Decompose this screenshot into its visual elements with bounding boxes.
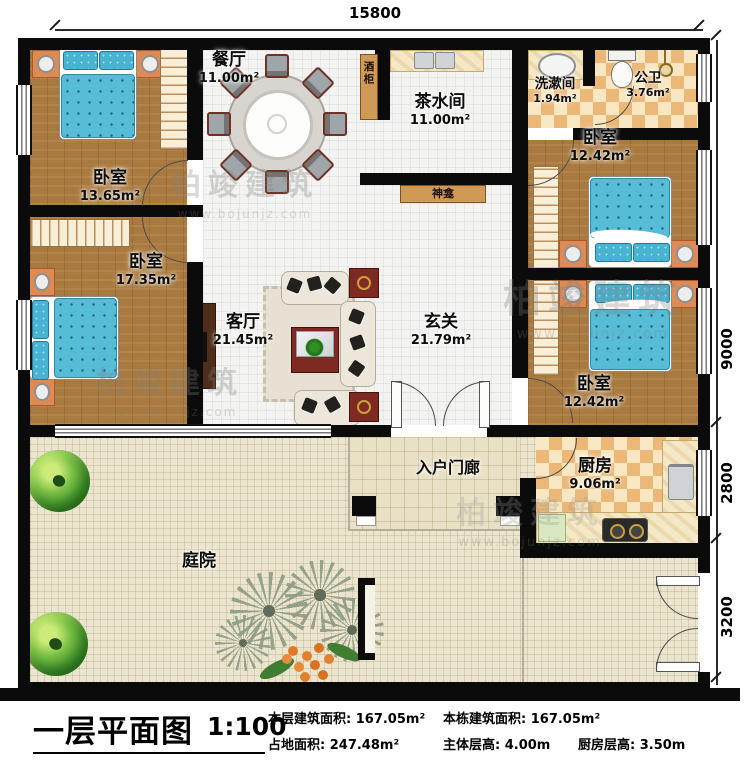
pillow <box>32 341 49 380</box>
nightstand <box>559 280 587 308</box>
wine-cabinet: 酒柜 <box>360 54 378 120</box>
kitchen-cabinet <box>538 514 566 542</box>
courtyard-gate-opening <box>698 573 710 672</box>
nightstand <box>559 240 587 268</box>
porch-edge-line <box>348 437 350 530</box>
wall <box>18 425 55 437</box>
room-label-porch: 入户门廊 <box>388 458 508 478</box>
wall <box>512 140 528 378</box>
title-bar <box>0 688 740 701</box>
fruit-cluster-icon <box>288 646 298 656</box>
bed-blanket <box>590 309 670 370</box>
sheet-title: 一层平面图 <box>33 706 193 751</box>
wall <box>520 543 710 558</box>
wall <box>18 205 203 217</box>
window <box>696 150 712 245</box>
room-label-courtyard: 庭院 <box>159 551 239 572</box>
stat-building-area: 本栋建筑面积: 167.05m² <box>443 708 600 727</box>
room-label-kitchen: 厨房 9.06m² <box>550 456 640 493</box>
room-label-dining: 餐厅 11.00m² <box>183 50 275 87</box>
porch-column <box>496 496 520 516</box>
wine-cabinet-label: 酒柜 <box>362 61 377 86</box>
room-label-bedroom4: 卧室 12.42m² <box>544 374 644 411</box>
pine-tree-icon <box>215 615 271 671</box>
wall <box>528 268 698 280</box>
window <box>16 300 32 370</box>
courtyard-step-line <box>522 558 524 682</box>
nightstand <box>671 240 699 268</box>
wardrobe <box>533 280 559 376</box>
porch-step <box>500 516 520 526</box>
stove-burner <box>610 524 625 539</box>
side-table <box>349 392 379 422</box>
pillow <box>633 243 670 262</box>
pillow <box>595 243 632 262</box>
tea-sink-icon <box>435 52 455 69</box>
bed-blanket <box>61 74 135 138</box>
dimension-line-top <box>55 29 703 31</box>
dimension-top: 15800 <box>330 4 420 22</box>
wall <box>331 425 391 437</box>
stat-kitchen-height: 厨房层高: 3.50m <box>578 734 685 753</box>
porch-column <box>352 496 376 516</box>
bed-blanket <box>590 178 670 238</box>
bed-blanket <box>54 298 117 378</box>
pillow <box>32 300 49 339</box>
room-label-bedroom3: 卧室 12.42m² <box>550 128 650 165</box>
dimension-right-3200: 3200 <box>718 595 736 639</box>
dining-chair <box>265 170 289 194</box>
wardrobe <box>30 219 130 247</box>
shrine-label: 神龛 <box>432 187 454 200</box>
dimension-right-9000: 9000 <box>718 327 736 371</box>
title-underline <box>33 752 265 754</box>
nightstand <box>29 378 55 406</box>
pillow <box>99 51 134 70</box>
window <box>696 450 712 516</box>
window <box>16 85 32 155</box>
room-label-bath: 公卫 3.76m² <box>618 70 678 100</box>
tea-sink-icon <box>414 52 434 69</box>
shrine: 神龛 <box>400 185 486 203</box>
dimension-tick <box>710 29 721 40</box>
courtyard-screen-wall <box>358 578 375 660</box>
window <box>55 424 331 438</box>
dining-chair <box>323 112 347 136</box>
tree-icon <box>24 612 88 676</box>
tree-icon <box>28 450 90 512</box>
wall <box>487 425 710 437</box>
stat-main-height: 主体层高: 4.00m <box>443 734 550 753</box>
toilet-tank <box>608 50 636 61</box>
room-label-bedroom2: 卧室 17.35m² <box>96 252 196 289</box>
floor-plan-sheet: 酒柜 神龛 卧室 13.65m² 餐厅 11.00m² 茶水间 11.00m² … <box>0 0 750 761</box>
wall <box>18 38 710 50</box>
porch-step <box>356 516 376 526</box>
room-label-bedroom1: 卧室 13.65m² <box>60 168 160 205</box>
window <box>696 288 712 374</box>
window <box>696 54 712 102</box>
side-table <box>349 268 379 298</box>
room-label-tea: 茶水间 11.00m² <box>390 92 490 129</box>
room-label-foyer: 玄关 21.79m² <box>391 312 491 349</box>
shower-hose <box>664 50 666 64</box>
dining-table-center <box>267 114 287 134</box>
stat-land-area: 占地面积: 247.48m² <box>268 734 399 753</box>
stove-burner <box>629 524 644 539</box>
nightstand <box>671 280 699 308</box>
nightstand <box>29 268 55 296</box>
plant-icon <box>305 338 324 357</box>
kitchen-sink-icon <box>668 464 694 500</box>
room-label-wash: 洗漱间 1.94m² <box>524 76 586 106</box>
dimension-right-2800: 2800 <box>718 461 736 505</box>
dining-chair <box>207 112 231 136</box>
room-label-living: 客厅 21.45m² <box>193 312 293 349</box>
porch-edge-line-bottom <box>348 529 520 531</box>
pillow <box>63 51 98 70</box>
stat-floor-area: 本层建筑面积: 167.05m² <box>268 708 425 727</box>
wall <box>360 173 512 185</box>
nightstand <box>32 50 60 78</box>
